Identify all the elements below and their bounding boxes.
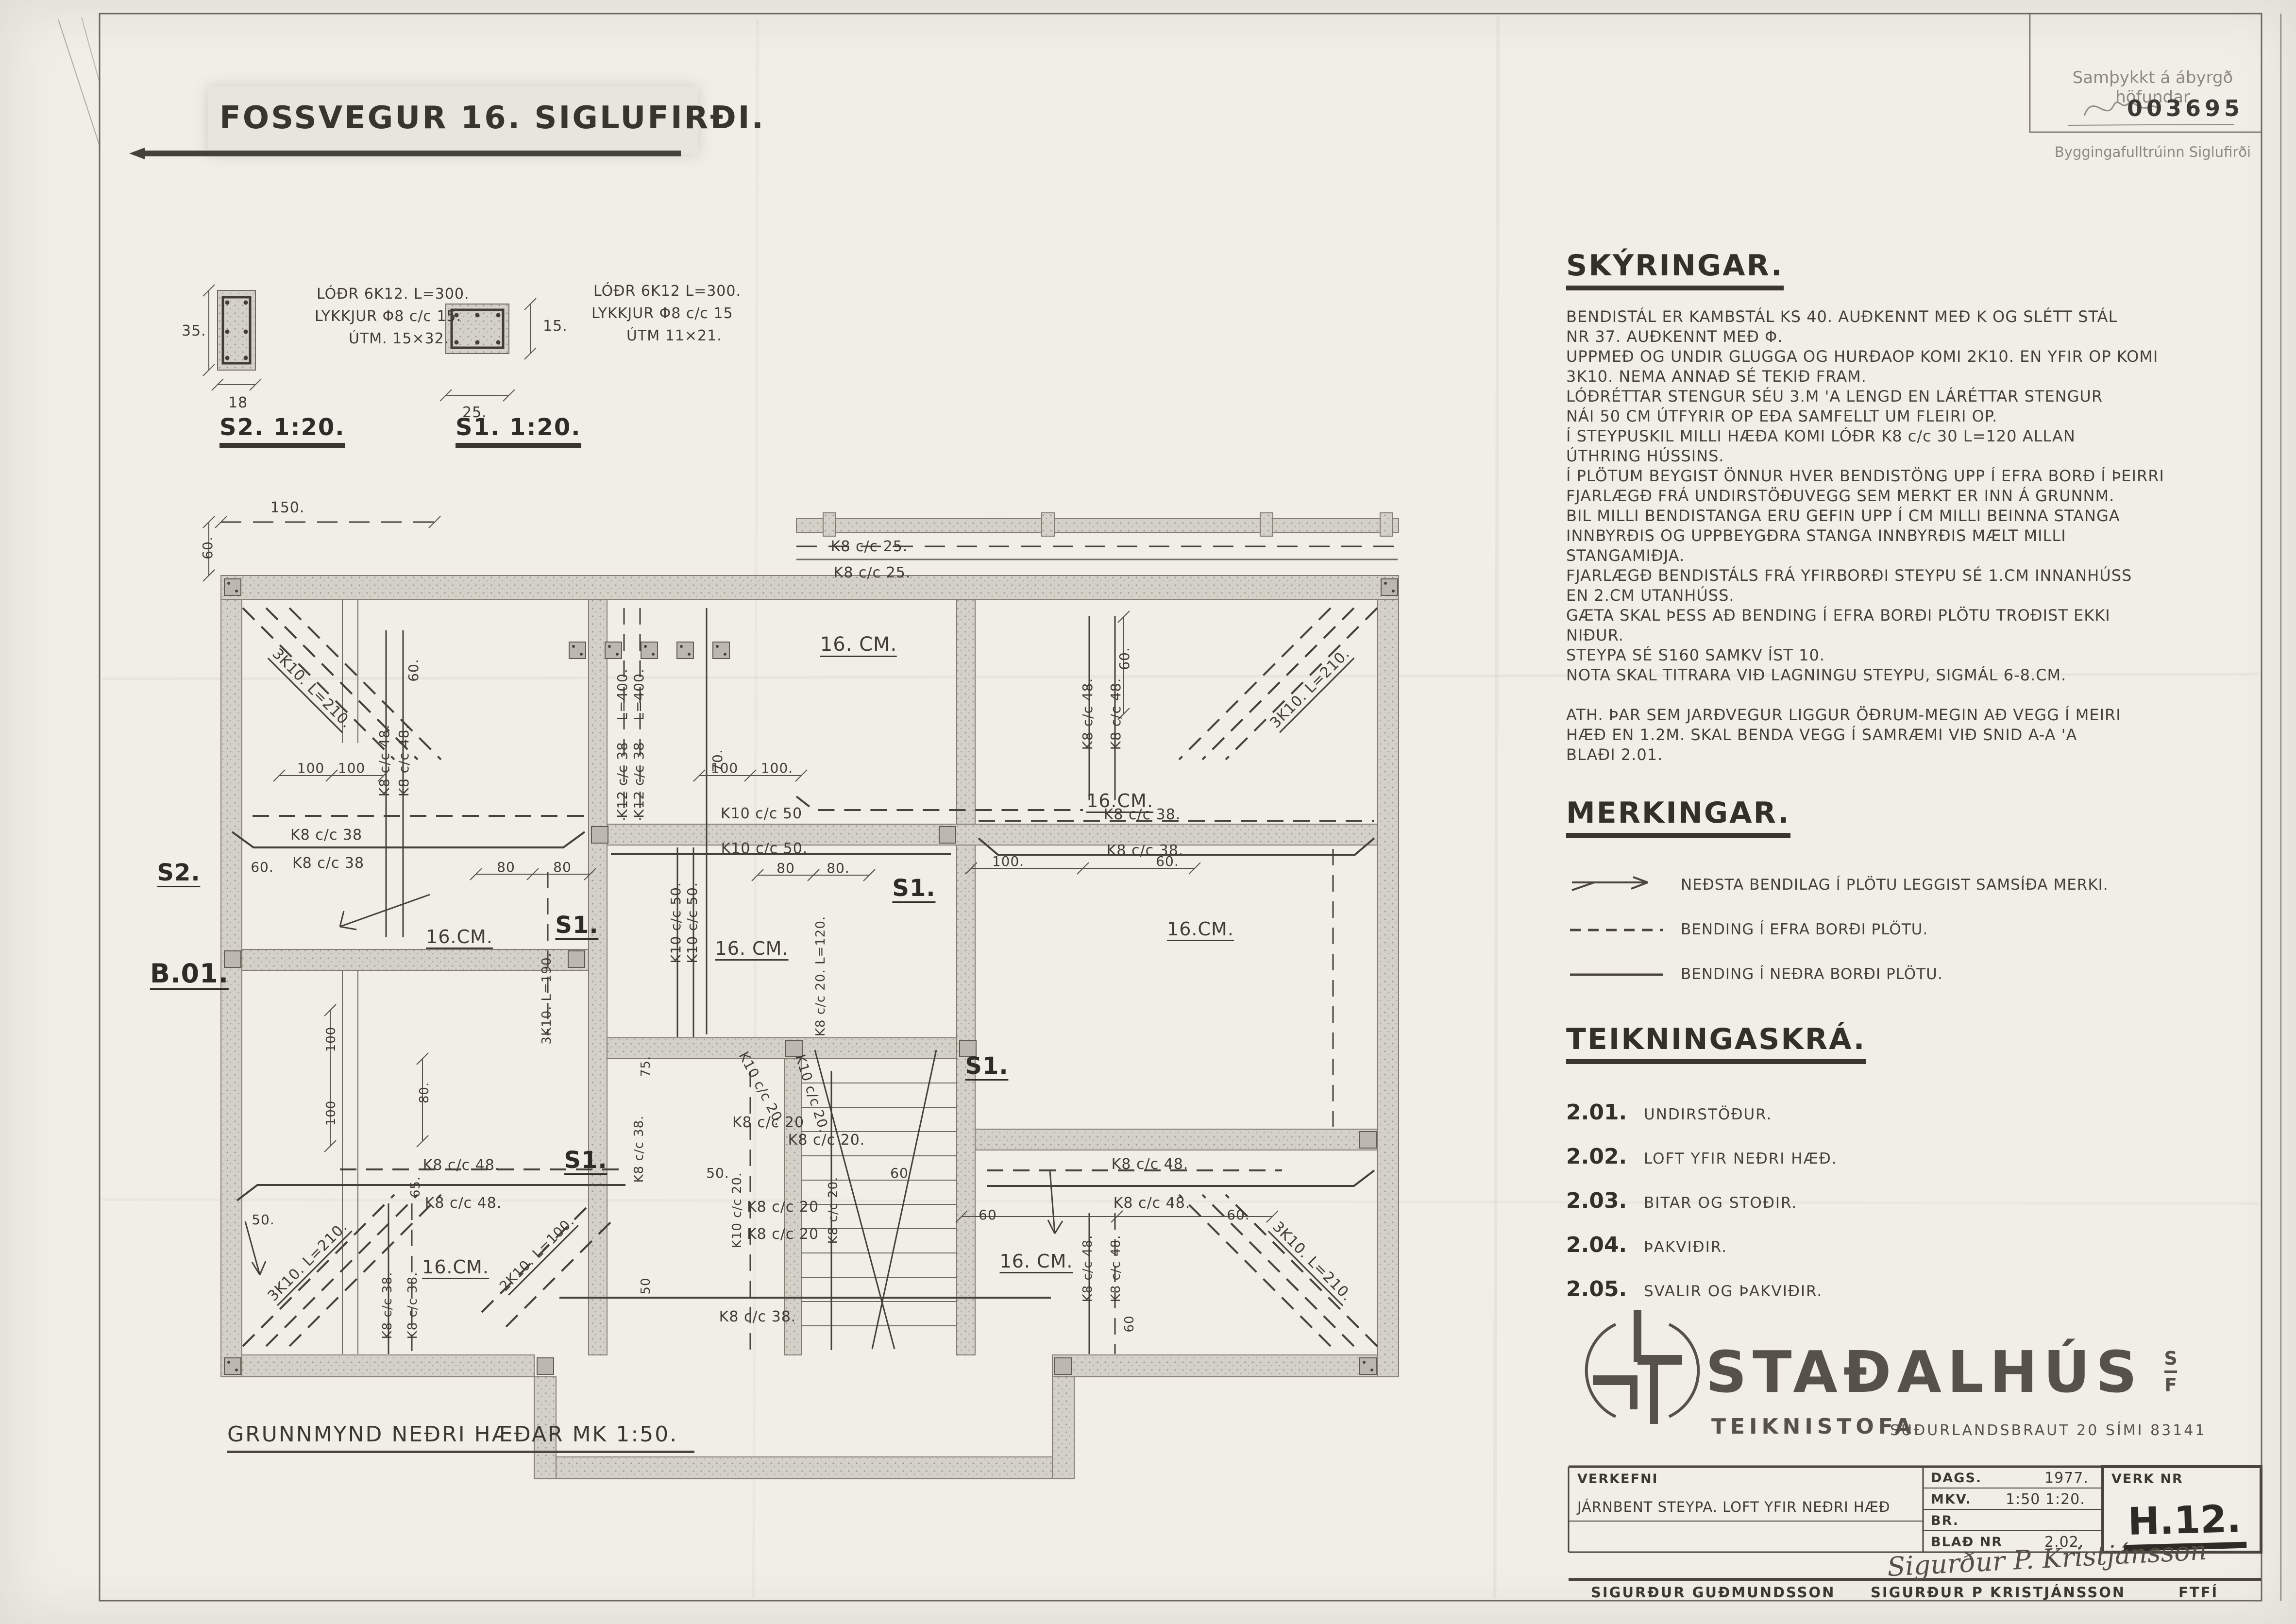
drawing-number: 2.05. xyxy=(1566,1277,1644,1302)
plan-annotation: K8 c/c 38. xyxy=(633,1116,645,1183)
mkv-label: MKV. xyxy=(1931,1492,1971,1507)
plan-annotation: 2K10. L=100. xyxy=(497,1214,579,1296)
plan-annotation: 16. CM. xyxy=(1000,1252,1073,1273)
drawing-name: ÞAKVIÐIR. xyxy=(1644,1238,1727,1256)
plan-annotation: 60 xyxy=(979,1208,997,1222)
engineer-name-1: SIGURÐUR GUÐMUNDSSON xyxy=(1591,1584,1835,1601)
merkingar-section: MERKINGAR. NEÐSTA BENDILAG Í PLÖTU LEGGI… xyxy=(1566,796,2268,988)
verkefni-label: VERKEFNI xyxy=(1577,1472,1658,1487)
drawing-name: LOFT YFIR NEÐRI HÆÐ. xyxy=(1644,1150,1838,1167)
plan-annotation: 3K10. L=190. xyxy=(540,952,553,1044)
skyringar-line: UPPMEÐ OG UNDIR GLUGGA OG HURÐAOP KOMI 2… xyxy=(1566,347,2268,367)
skyringar-line: STEYPA SÉ S160 SAMKV ÍST 10. xyxy=(1566,645,2268,665)
firm-suffix: S F xyxy=(2160,1349,2181,1394)
skyringar-line: FJARLÆGÐ BENDISTÁLS FRÁ YFIRBORÐI STEYPU… xyxy=(1566,566,2268,586)
skyringar-line: BLAÐI 2.01. xyxy=(1566,745,2268,765)
skyringar-line: FJARLÆGÐ FRÁ UNDIRSTÖÐUVEGG SEM MERKT ER… xyxy=(1566,486,2268,506)
plan-annotation: 100. xyxy=(992,855,1024,868)
legend-arrow-icon xyxy=(1566,871,1668,899)
plan-annotation: K8 c/c 25. xyxy=(834,566,911,580)
plan-annotation: 3K10. L=210. xyxy=(268,646,355,733)
plan-annotation: K8 c/c 20 xyxy=(747,1200,819,1215)
firm-suffix-top: S xyxy=(2160,1349,2181,1368)
skyringar-line: BENDISTÁL ER KAMBSTÁL KS 40. AUÐKENNT ME… xyxy=(1566,307,2268,327)
skyringar-line: 3K10. NEMA ANNAÐ SÉ TEKIÐ FRAM. xyxy=(1566,367,2268,387)
drawing-name: SVALIR OG ÞAKVIÐIR. xyxy=(1644,1283,1823,1300)
skyringar-heading: SKÝRINGAR. xyxy=(1566,249,1784,290)
drawing-list-row: 2.01.UNDIRSTÖÐUR. xyxy=(1566,1100,2268,1125)
plan-annotation: K8 c/c 38 xyxy=(290,828,362,843)
legend-text: NEÐSTA BENDILAG Í PLÖTU LEGGIST SAMSÍÐA … xyxy=(1681,876,2109,894)
plan-annotation: L=400. xyxy=(632,668,646,720)
plan-annotation: K8 c/c 48. xyxy=(397,725,411,797)
plan-annotation: S1. xyxy=(564,1149,607,1175)
plan-annotation: L=400. xyxy=(616,668,629,720)
legend-text: BENDING Í NEÐRA BORÐI PLÖTU. xyxy=(1681,965,1943,983)
plan-annotation: 60 xyxy=(890,1167,909,1180)
plan-annotation: 65. xyxy=(409,1176,422,1198)
plan-annotation: S1. xyxy=(965,1054,1008,1081)
drawing-number: 2.04. xyxy=(1566,1233,1644,1257)
plan-annotation: 60 xyxy=(1123,1315,1136,1332)
plan-annotation: K8 c/c 48. xyxy=(1114,1196,1191,1211)
plan-annotation: K10 c/c 50. xyxy=(669,882,683,964)
plan-annotation: 80. xyxy=(418,1082,431,1103)
skyringar-line: NOTA SKAL TITRARA VIÐ LAGNINGU STEYPU, S… xyxy=(1566,665,2268,685)
plan-annotation: 80 xyxy=(497,861,515,874)
skyringar-line: EN 2.CM UTANHÚSS. xyxy=(1566,586,2268,606)
plan-annotation: 100. xyxy=(761,761,793,775)
plan-annotation: 50 xyxy=(640,1277,652,1294)
plan-annotation: K8 c/c 20. xyxy=(788,1133,865,1148)
legend-row: BENDING Í EFRA BORÐI PLÖTU. xyxy=(1566,915,2268,944)
plan-caption: GRUNNMYND NEÐRI HÆÐAR MK 1:50. xyxy=(227,1422,694,1453)
plan-annotation: 100 xyxy=(338,761,365,775)
teikningaskra-heading: TEIKNINGASKRÁ. xyxy=(1566,1022,1866,1064)
teikningaskra-section: TEIKNINGASKRÁ. 2.01.UNDIRSTÖÐUR.2.02.LOF… xyxy=(1566,1022,2268,1302)
plan-annotation: K8 c/c 25. xyxy=(831,540,908,554)
plan-annotation: 60. xyxy=(251,861,274,874)
plan-annotation: K8 c/c 38 xyxy=(292,856,364,871)
skyringar-line: INNBYRÐIS OG UPPBEYGÐRA STANGA INNBYRÐIS… xyxy=(1566,526,2268,546)
plan-annotation: K8 c/c 20. L=120. xyxy=(814,916,827,1036)
engineer-title: FTFÍ xyxy=(2178,1584,2218,1601)
skyringar-line: Í STEYPUSKIL MILLI HÆÐA KOMI LÓÐR K8 c/c… xyxy=(1566,426,2268,446)
skyringar-line: HÆÐ EN 1.2M. SKAL BENDA VEGG Í SAMRÆMI V… xyxy=(1566,725,2268,745)
plan-annotation: K8 c/c 48. xyxy=(378,725,391,797)
plan-annotation: 3K10. L=210. xyxy=(1268,1219,1355,1306)
plan-annotation: 50. xyxy=(252,1213,275,1227)
firm-address: SUÐURLANDSBRAUT 20 SÍMI 83141 xyxy=(1890,1422,2206,1439)
plan-annotation: K8 c/c 38. xyxy=(1104,808,1181,822)
plan-annotation: B.01. xyxy=(150,961,229,990)
skyringar-line: NIÐUR. xyxy=(1566,626,2268,645)
engineer-name-2: SIGURÐUR P KRISTJÁNSSON xyxy=(1871,1584,2126,1601)
plan-annotation: S1. xyxy=(555,913,598,940)
skyringar-line: NÁI 50 CM ÚTFYRIR OP EÐA SAMFELLT UM FLE… xyxy=(1566,406,2268,426)
plan-annotation: 3K10. L=210. xyxy=(1268,646,1355,733)
mkv-value: 1:50 1:20. xyxy=(2006,1491,2085,1508)
legend-dashed-line-icon xyxy=(1566,915,1668,944)
plan-annotation: 60. xyxy=(1156,855,1179,868)
plan-annotation: 50. xyxy=(706,1167,729,1180)
verknr-label: VERK NR xyxy=(2111,1472,2183,1487)
plan-annotation: K8 c/c 20 xyxy=(732,1116,804,1130)
plan-annotation: K8 c/c 38. xyxy=(406,1272,419,1339)
plan-annotation: 80. xyxy=(827,862,850,875)
plan-annotation: 100 xyxy=(325,1027,338,1052)
plan-annotation: K8 c/c 20. xyxy=(827,1177,840,1244)
drawing-list: 2.01.UNDIRSTÖÐUR.2.02.LOFT YFIR NEÐRI HÆ… xyxy=(1566,1100,2268,1302)
plan-annotation: K8 c/c 20 xyxy=(747,1227,819,1242)
plan-annotation: 3K10. L=210. xyxy=(266,1219,353,1306)
plan-annotation: 150. xyxy=(270,501,305,515)
legend-row: NEÐSTA BENDILAG Í PLÖTU LEGGIST SAMSÍÐA … xyxy=(1566,871,2268,899)
plan-annotation: K8 c/c 38. xyxy=(719,1310,796,1324)
plan-annotation: K8 c/c 48. xyxy=(1112,1157,1189,1172)
plan-annotation: 100 xyxy=(325,1100,338,1126)
drawing-name: BITAR OG STOÐIR. xyxy=(1644,1194,1797,1212)
plan-annotation: 16.CM. xyxy=(422,1258,489,1279)
drawing-list-row: 2.03.BITAR OG STOÐIR. xyxy=(1566,1188,2268,1213)
skyringar-line: LÓÐRÉTTAR STENGUR SÉU 3.M 'A LENGD EN LÁ… xyxy=(1566,387,2268,406)
plan-annotation: K8 c/c 38. xyxy=(381,1272,394,1339)
plan-annotation: S1. xyxy=(892,877,935,903)
skyringar-line: ÚTHRING HÚSSINS. xyxy=(1566,446,2268,466)
drawing-list-row: 2.05.SVALIR OG ÞAKVIÐIR. xyxy=(1566,1277,2268,1302)
firm-name: STAÐALHÚS xyxy=(1705,1338,2143,1405)
drawing-name: UNDIRSTÖÐUR. xyxy=(1644,1106,1772,1123)
drawing-number: 2.02. xyxy=(1566,1144,1644,1169)
drawing-number: 2.03. xyxy=(1566,1188,1644,1213)
merkingar-heading: MERKINGAR. xyxy=(1566,796,1790,838)
notes-column: SKÝRINGAR. BENDISTÁL ER KAMBSTÁL KS 40. … xyxy=(1566,249,2268,1321)
legend-text: BENDING Í EFRA BORÐI PLÖTU. xyxy=(1681,921,1928,938)
plan-annotation: 60. xyxy=(1227,1208,1250,1222)
drawing-list-row: 2.02.LOFT YFIR NEÐRI HÆÐ. xyxy=(1566,1144,2268,1169)
firm-suffix-divider xyxy=(2164,1370,2177,1373)
skyringar-body: BENDISTÁL ER KAMBSTÁL KS 40. AUÐKENNT ME… xyxy=(1566,307,2268,765)
skyringar-line: GÆTA SKAL ÞESS AÐ BENDING Í EFRA BORÐI P… xyxy=(1566,606,2268,626)
plan-annotation: 100 xyxy=(297,761,324,775)
skyringar-line: STANGAMIÐJA. xyxy=(1566,546,2268,566)
plan-annotation: 60. xyxy=(201,536,215,559)
plan-annotation: 60. xyxy=(407,659,421,682)
plan-annotation: 16.CM. xyxy=(1167,920,1234,941)
plan-annotation: 100 xyxy=(711,761,738,775)
skyringar-line: ATH. ÞAR SEM JARÐVEGUR LIGGUR ÖÐRUM-MEGI… xyxy=(1566,705,2268,725)
plan-annotation: 80 xyxy=(553,861,572,874)
verkefni-value: JÁRNBENT STEYPA. LOFT YFIR NEÐRI HÆÐ xyxy=(1577,1499,1890,1515)
skyringar-line: NR 37. AUÐKENNT MEÐ Φ. xyxy=(1566,327,2268,347)
dags-label: DAGS. xyxy=(1931,1471,1982,1486)
skyringar-line: Í PLÖTUM BEYGIST ÖNNUR HVER BENDISTÖNG U… xyxy=(1566,466,2268,486)
legend-row: BENDING Í NEÐRA BORÐI PLÖTU. xyxy=(1566,960,2268,988)
drawing-number: 2.01. xyxy=(1566,1100,1644,1125)
plan-annotation: K12 c/c 38 xyxy=(632,742,646,818)
drawing-sheet: FOSSVEGUR 16. SIGLUFIRÐI. Samþykkt á áby… xyxy=(0,0,2296,1624)
skyringar-line: BIL MILLI BENDISTANGA ERU GEFIN UPP Í CM… xyxy=(1566,506,2268,526)
plan-annotation: 16.CM. xyxy=(426,928,493,949)
plan-annotation: K8 c/c 48. xyxy=(425,1196,502,1211)
plan-annotation: K10 c/c 50. xyxy=(721,842,808,856)
firm-dept: TEIKNISTOFA xyxy=(1711,1414,1916,1439)
plan-annotation: S2. xyxy=(157,861,200,887)
plan-annotation: 80 xyxy=(777,862,795,875)
plan-annotation: K8 c/c 48. xyxy=(1081,678,1095,750)
plan-annotation: K8 c/c 48. xyxy=(1081,1235,1094,1303)
plan-annotation: 16. CM. xyxy=(715,939,789,961)
br-label: BR. xyxy=(1931,1513,1959,1528)
plan-annotation: 16. CM. xyxy=(820,635,897,657)
firm-suffix-bottom: F xyxy=(2160,1376,2181,1394)
plan-annotation: 60. xyxy=(1118,647,1131,670)
plan-annotation: K8 c/c 48. xyxy=(423,1158,500,1173)
plan-annotation: K10 c/c 20. xyxy=(731,1172,743,1248)
plan-annotation: K12 c/c 38 xyxy=(616,742,629,818)
dags-value: 1977. xyxy=(2044,1470,2089,1487)
plan-annotation: K8 c/c 48. xyxy=(1109,678,1123,750)
drawing-list-row: 2.04.ÞAKVIÐIR. xyxy=(1566,1233,2268,1257)
legend-solid-line-icon xyxy=(1566,960,1668,988)
skyringar-line xyxy=(1566,685,2268,705)
plan-annotation: K10 c/c 50. xyxy=(686,882,699,964)
plan-annotation: K10 c/c 50 xyxy=(721,807,802,821)
plan-annotation: 75. xyxy=(640,1056,652,1077)
plan-annotation: K8 c/c 48. xyxy=(1110,1235,1122,1303)
